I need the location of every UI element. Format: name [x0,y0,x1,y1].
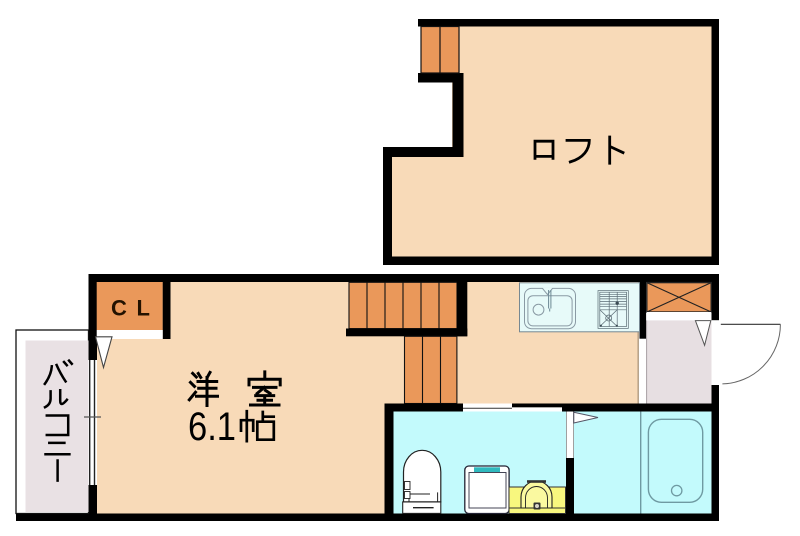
svg-text:6.1: 6.1 [188,405,236,449]
svg-text:CL: CL [111,296,160,321]
